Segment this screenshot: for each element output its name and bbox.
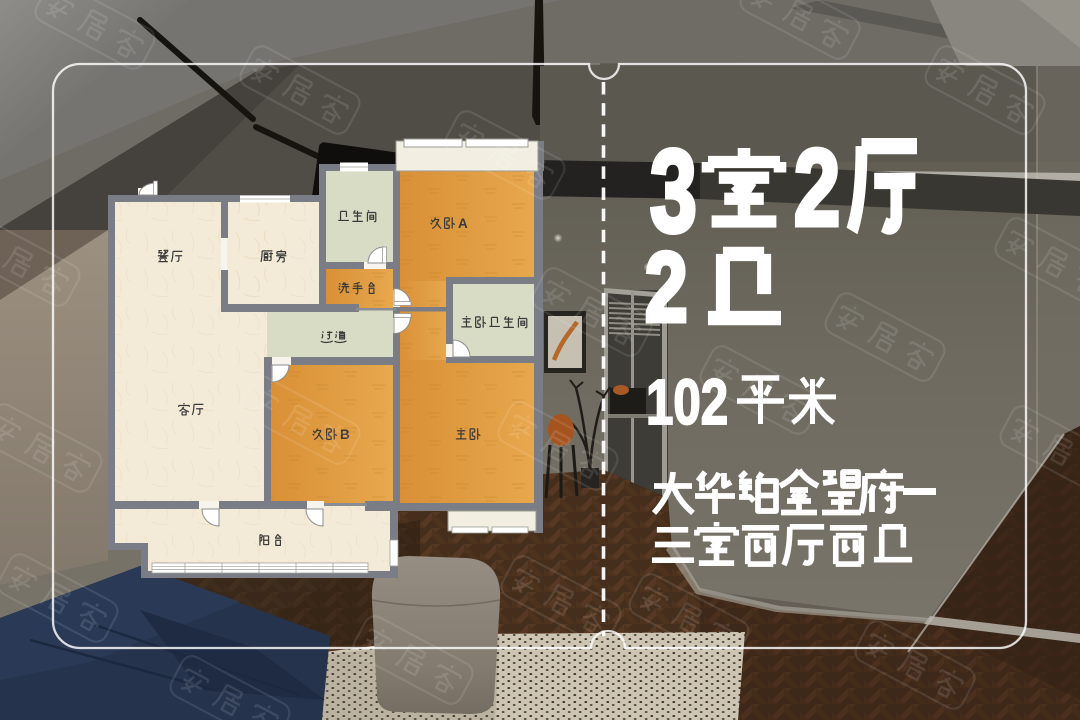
svg-text:2: 2 bbox=[794, 126, 840, 249]
svg-text:A: A bbox=[458, 216, 468, 231]
svg-text:2: 2 bbox=[645, 232, 688, 342]
svg-text:102: 102 bbox=[646, 367, 728, 439]
